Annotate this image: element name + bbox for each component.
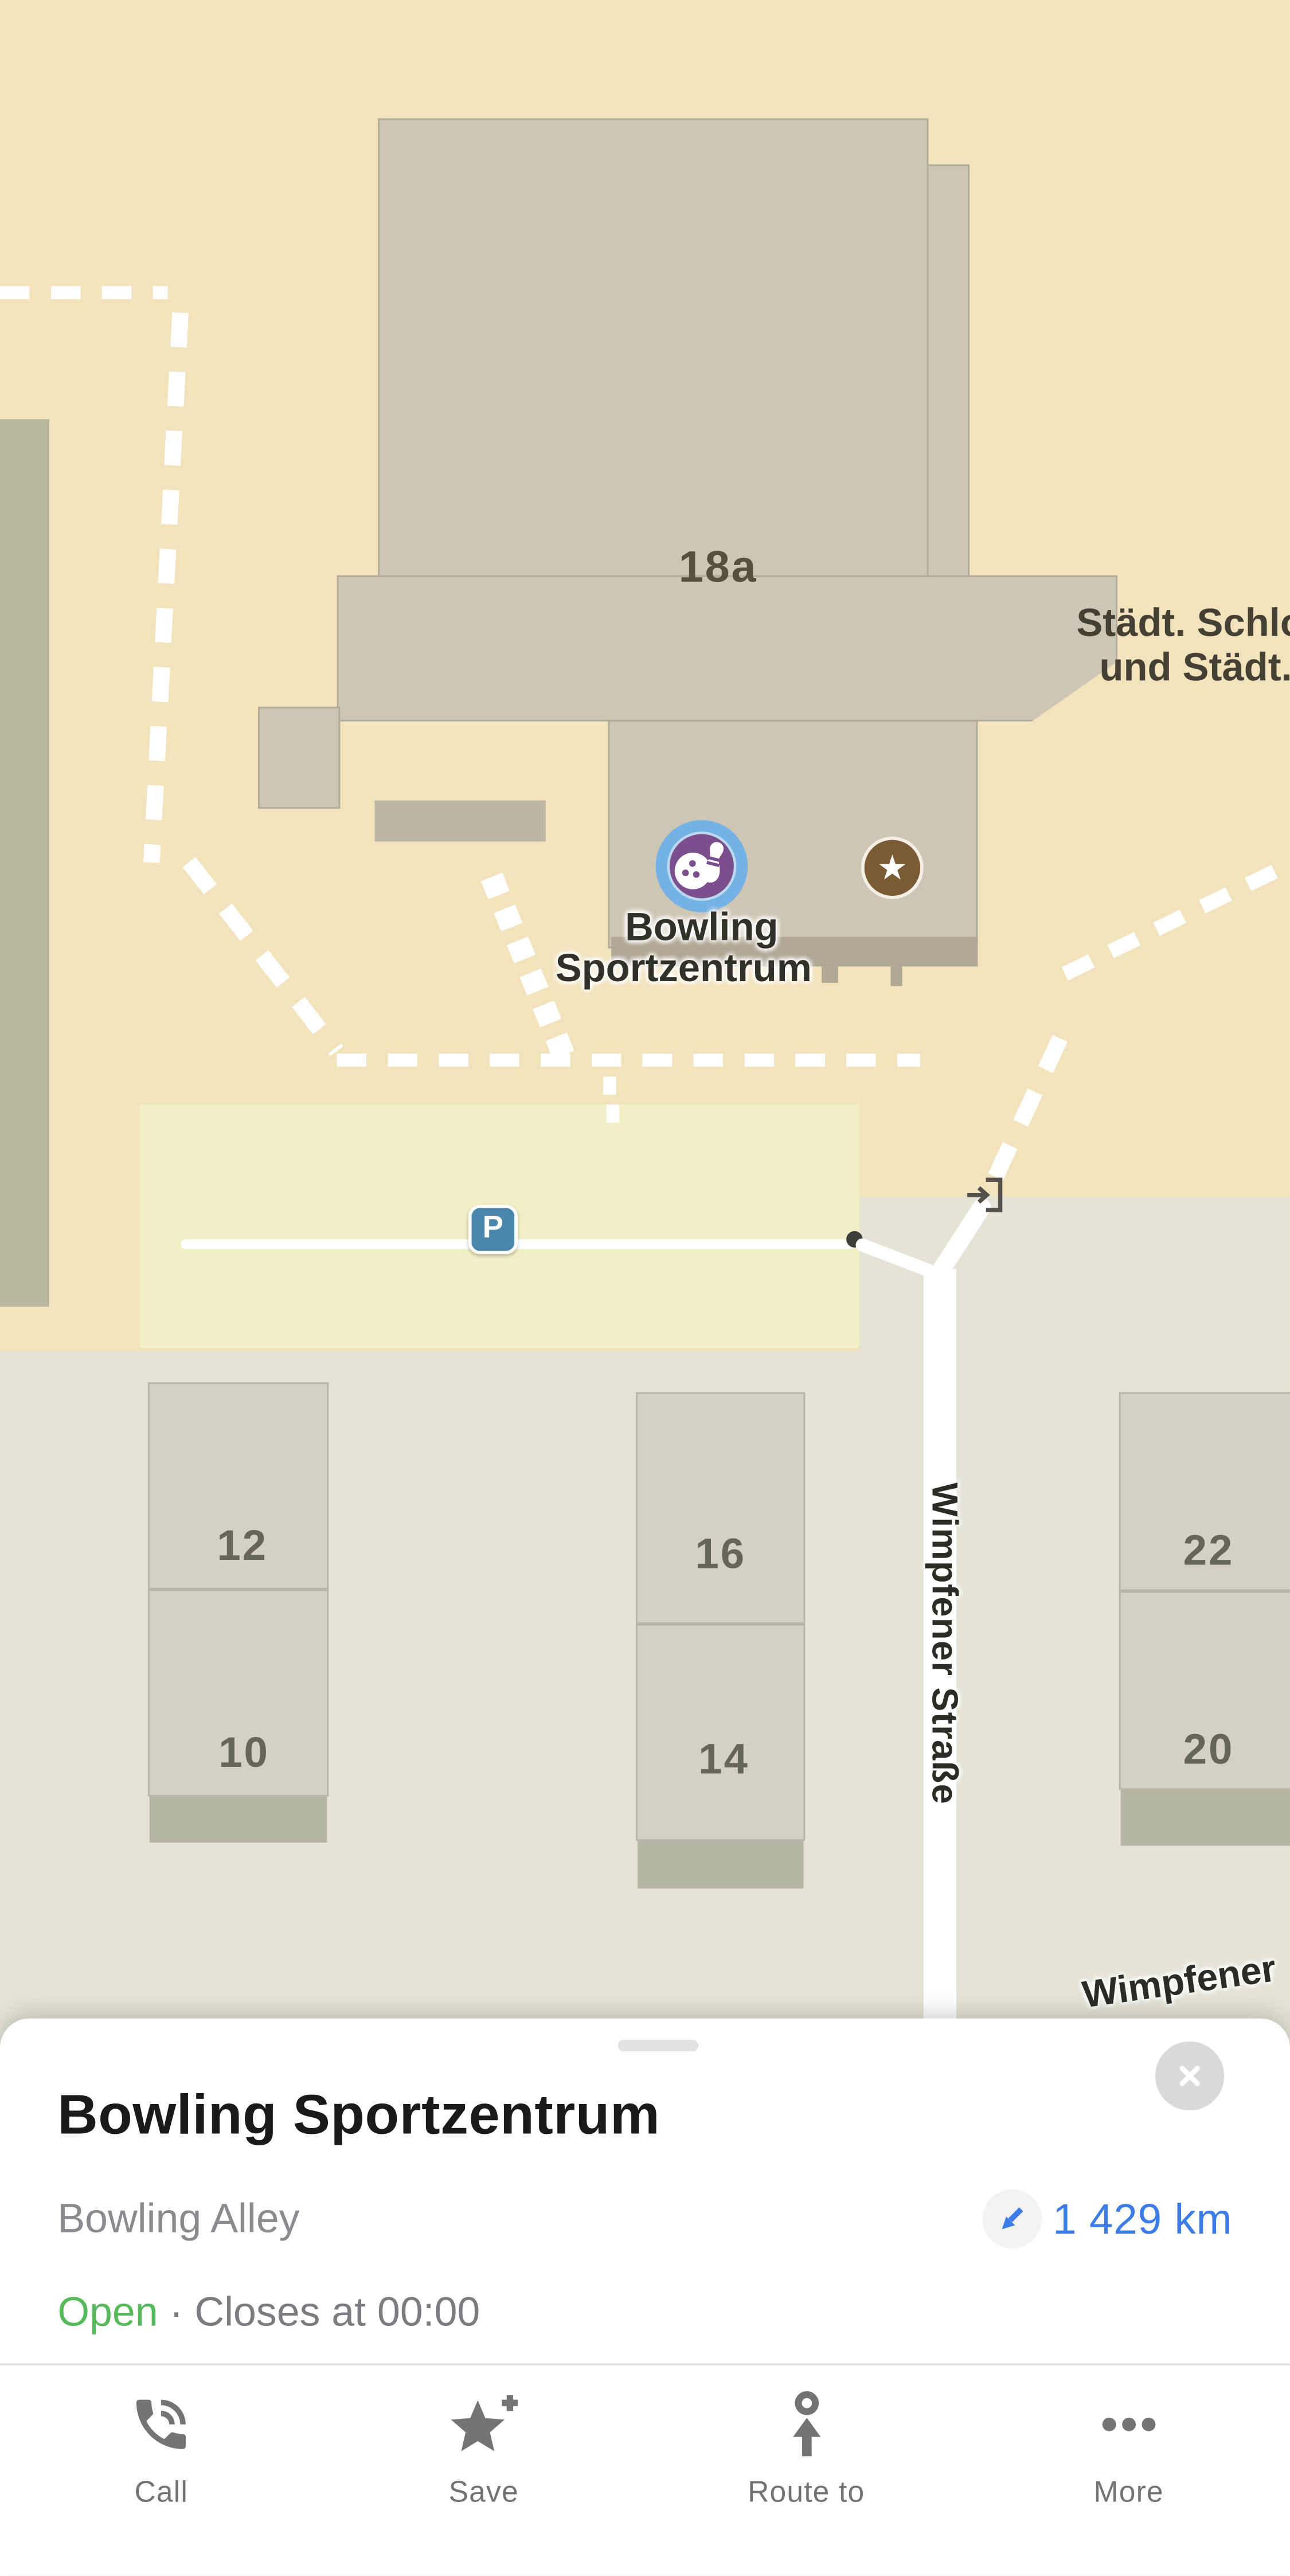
saved-place-marker[interactable]: ★ <box>861 837 924 899</box>
open-status: Open <box>57 2290 158 2336</box>
building-wing-left <box>258 707 340 809</box>
footpath-left-vertical <box>143 312 189 862</box>
parking-icon: P <box>483 1211 503 1247</box>
house-number-20: 20 <box>1183 1724 1234 1775</box>
more-icon <box>1094 2388 1163 2461</box>
green-strip <box>0 419 49 1307</box>
hours-row: Open · Closes at 00:00 <box>57 2290 480 2337</box>
building-number-label: 18a <box>679 542 758 594</box>
street-name-vertical: Wimpfener Straße <box>916 1450 965 1837</box>
poi-label: Bowling Sportzentrum <box>537 907 866 989</box>
route-to-label: Route to <box>748 2475 865 2509</box>
building-main-top-step <box>927 165 970 577</box>
house-20-shadow <box>1121 1790 1290 1845</box>
house-number-14: 14 <box>698 1734 749 1785</box>
distance-group: 1 429 km <box>982 2189 1233 2249</box>
call-label: Call <box>134 2475 187 2509</box>
house-16 <box>636 1392 805 1624</box>
house-14 <box>636 1624 805 1841</box>
save-star-icon <box>448 2388 520 2461</box>
truncated-place-line2: und Städt. <box>1076 646 1290 690</box>
building-ledge-left <box>374 801 545 842</box>
truncated-place-label: Städt. Schlo und Städt. <box>1076 602 1290 690</box>
footpath-top-horizontal <box>0 286 167 299</box>
house-number-22: 22 <box>1183 1525 1234 1576</box>
building-main-top <box>378 118 928 577</box>
poi-label-line2: Sportzentrum <box>501 949 866 990</box>
call-button[interactable]: Call <box>0 2365 322 2575</box>
dot-separator: · <box>170 2290 183 2336</box>
building-annex-tooth2 <box>890 966 902 986</box>
truncated-place-line1: Städt. Schlo <box>1076 602 1290 646</box>
entrance-icon <box>964 1173 1007 1216</box>
house-10-shadow <box>150 1797 327 1843</box>
route-icon <box>773 2388 839 2461</box>
footpath-mid-horizontal <box>337 1053 921 1067</box>
map-canvas[interactable]: 18a Städt. Schlo und Städt. 12 10 16 14 … <box>0 0 1290 2046</box>
parking-badge[interactable]: P <box>468 1205 518 1254</box>
house-number-16: 16 <box>695 1529 746 1580</box>
close-button[interactable] <box>1155 2042 1224 2110</box>
house-number-12: 12 <box>217 1520 268 1571</box>
house-number-10: 10 <box>218 1727 269 1778</box>
action-bar: Call Save Route to <box>0 2365 1290 2575</box>
building-main-mid <box>337 575 1117 721</box>
sheet-drag-handle[interactable] <box>618 2040 698 2051</box>
footpath-stub1 <box>603 1076 616 1095</box>
star-icon: ★ <box>877 850 908 885</box>
footpath-stub2 <box>607 1104 620 1123</box>
house-14-shadow <box>638 1841 803 1888</box>
footpath-left-diagonal <box>182 857 343 1056</box>
save-button[interactable]: Save <box>322 2365 644 2575</box>
phone-icon <box>128 2388 194 2461</box>
poi-label-line1: Bowling <box>537 907 866 949</box>
more-button[interactable]: More <box>967 2365 1289 2575</box>
place-category: Bowling Alley <box>57 2195 299 2243</box>
more-label: More <box>1094 2475 1164 2509</box>
bowling-marker[interactable] <box>654 818 749 914</box>
save-label: Save <box>449 2475 519 2509</box>
closing-time: Closes at 00:00 <box>194 2290 480 2336</box>
place-title: Bowling Sportzentrum <box>57 2084 660 2148</box>
direction-icon <box>982 2189 1041 2249</box>
distance-value: 1 429 km <box>1053 2193 1232 2245</box>
footpath-right-diagonal <box>1062 856 1290 981</box>
bowling-icon <box>654 818 749 914</box>
close-icon <box>1172 2058 1208 2094</box>
place-detail-sheet: Bowling Sportzentrum Bowling Alley 1 429… <box>0 2019 1290 2576</box>
phone-screen: 18a Städt. Schlo und Städt. 12 10 16 14 … <box>0 0 1290 2576</box>
category-distance-row: Bowling Alley 1 429 km <box>57 2189 1232 2249</box>
footpath-entrance-diagonal <box>983 1035 1068 1191</box>
route-to-button[interactable]: Route to <box>645 2365 967 2575</box>
